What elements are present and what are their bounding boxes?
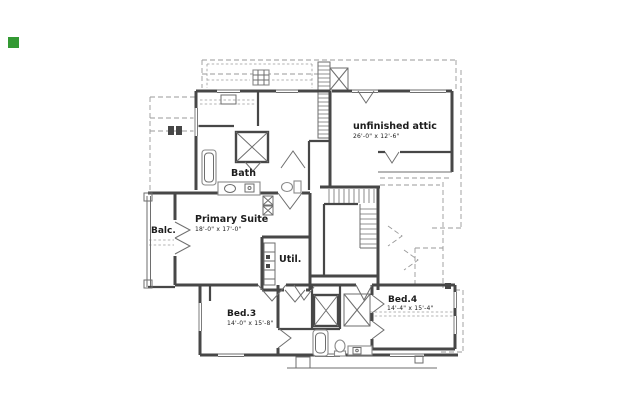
linen-shelves [263, 196, 273, 215]
staircase [329, 189, 377, 248]
toilet-lower [335, 340, 346, 356]
shower [236, 132, 268, 171]
bed3-dims: 14'-0" x 15'-8" [227, 320, 273, 327]
balcony-railing [144, 193, 175, 288]
primary-suite-label: Primary Suite [195, 214, 268, 225]
bed3-label: Bed.3 [227, 309, 256, 319]
rear-step-edge [287, 356, 437, 368]
bed4-label: Bed.4 [388, 295, 417, 305]
closet-rod [200, 95, 256, 104]
utility-label: Util. [279, 254, 301, 265]
roof-posts [168, 126, 182, 135]
toilet-upper [282, 181, 302, 193]
bath-label: Bath [231, 168, 256, 179]
bed4-dims: 14'-4" x 15'-4" [387, 305, 433, 312]
attic-dims: 26'-0" x 12'-6" [353, 133, 399, 140]
wardrobe-closet [314, 295, 338, 326]
vanity-sink-upper [218, 182, 260, 195]
attic-label: unfinished attic [353, 121, 437, 132]
primary-suite-dims: 18'-0" x 17'-0" [195, 226, 241, 233]
bathtub-upper [202, 150, 216, 185]
bathtub-lower [313, 330, 328, 356]
balcony-label: Balc. [151, 226, 176, 236]
vanity-sink-lower [348, 346, 372, 355]
attic-ladder [318, 62, 330, 138]
attic-access-hatch [330, 68, 348, 90]
attic-furnace-unit [207, 64, 312, 88]
utility-shelves [264, 243, 275, 285]
attic-kneewall-arrows [388, 226, 418, 270]
bed4-closet [344, 294, 370, 326]
floor-plan: unfinished attic 26'-0" x 12'-6" Primary… [0, 0, 620, 415]
green-marker [8, 37, 19, 48]
